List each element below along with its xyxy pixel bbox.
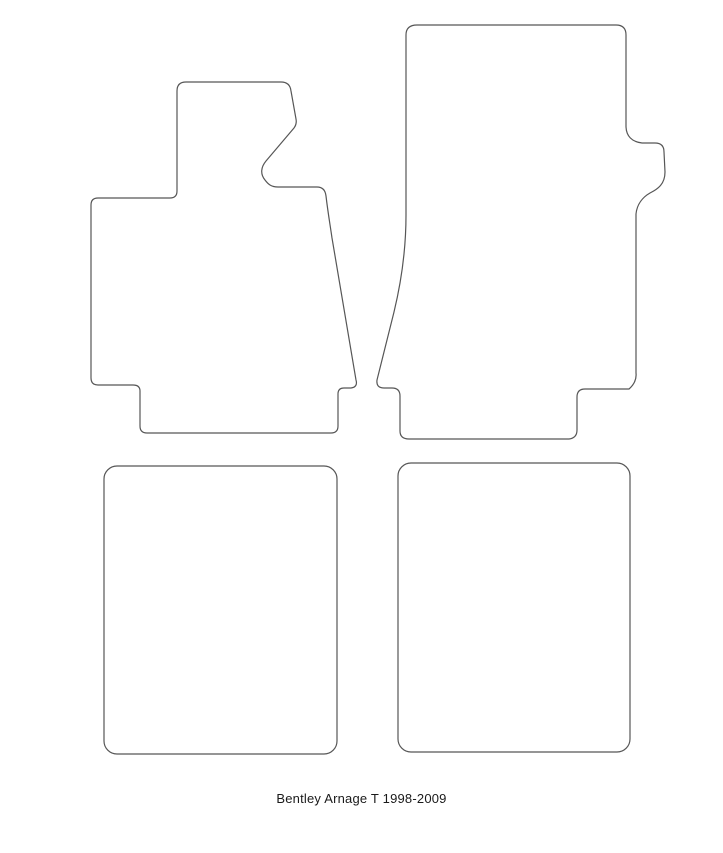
product-caption: Bentley Arnage T 1998-2009: [0, 792, 723, 806]
front-left-mat-outline: [91, 82, 356, 433]
mat-template-page: Bentley Arnage T 1998-2009: [0, 0, 723, 853]
rear-right-mat-outline: [398, 463, 630, 752]
front-right-mat-outline: [377, 25, 665, 439]
rear-left-mat-outline: [104, 466, 337, 754]
floor-mat-diagram: [0, 0, 723, 853]
